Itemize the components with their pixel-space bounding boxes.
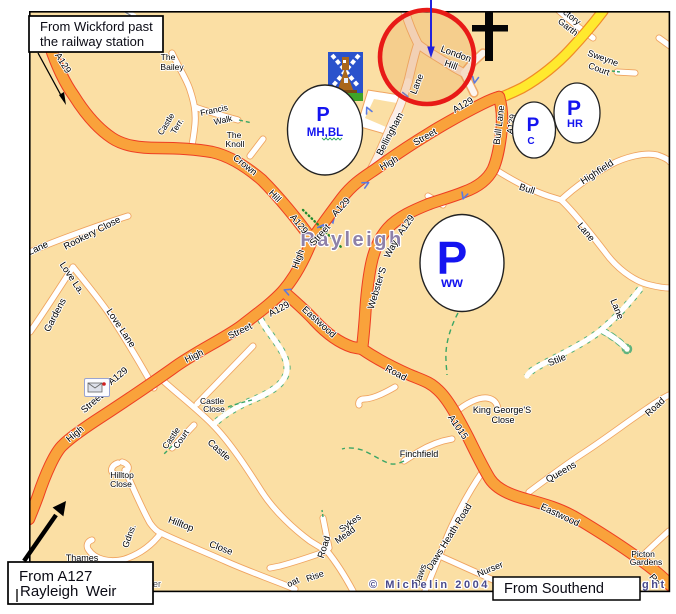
svg-text:the railway station: the railway station — [40, 34, 144, 49]
svg-text:er: er — [153, 579, 161, 589]
svg-text:P: P — [316, 104, 329, 126]
svg-text:C: C — [527, 136, 534, 147]
svg-text:Close: Close — [110, 479, 132, 489]
svg-text:Knoll: Knoll — [226, 139, 245, 149]
svg-text:Gardens: Gardens — [630, 557, 663, 567]
svg-text:Close: Close — [491, 415, 514, 425]
svg-text:From Southend: From Southend — [504, 581, 604, 597]
svg-text:ww: ww — [440, 274, 463, 290]
svg-text:P: P — [527, 115, 540, 136]
svg-text:MH,BL: MH,BL — [307, 127, 343, 139]
svg-text:P: P — [567, 97, 581, 120]
svg-text:Bailey: Bailey — [160, 62, 184, 72]
svg-text:King George'S: King George'S — [473, 405, 531, 415]
svg-text:HR: HR — [567, 118, 583, 130]
svg-text:The: The — [161, 52, 176, 62]
svg-text:Rayleigh Weir: Rayleigh Weir — [20, 583, 116, 600]
svg-text:Close: Close — [203, 404, 225, 414]
svg-text:From Wickford past: From Wickford past — [40, 19, 153, 34]
svg-text:Finchfield: Finchfield — [400, 449, 439, 459]
